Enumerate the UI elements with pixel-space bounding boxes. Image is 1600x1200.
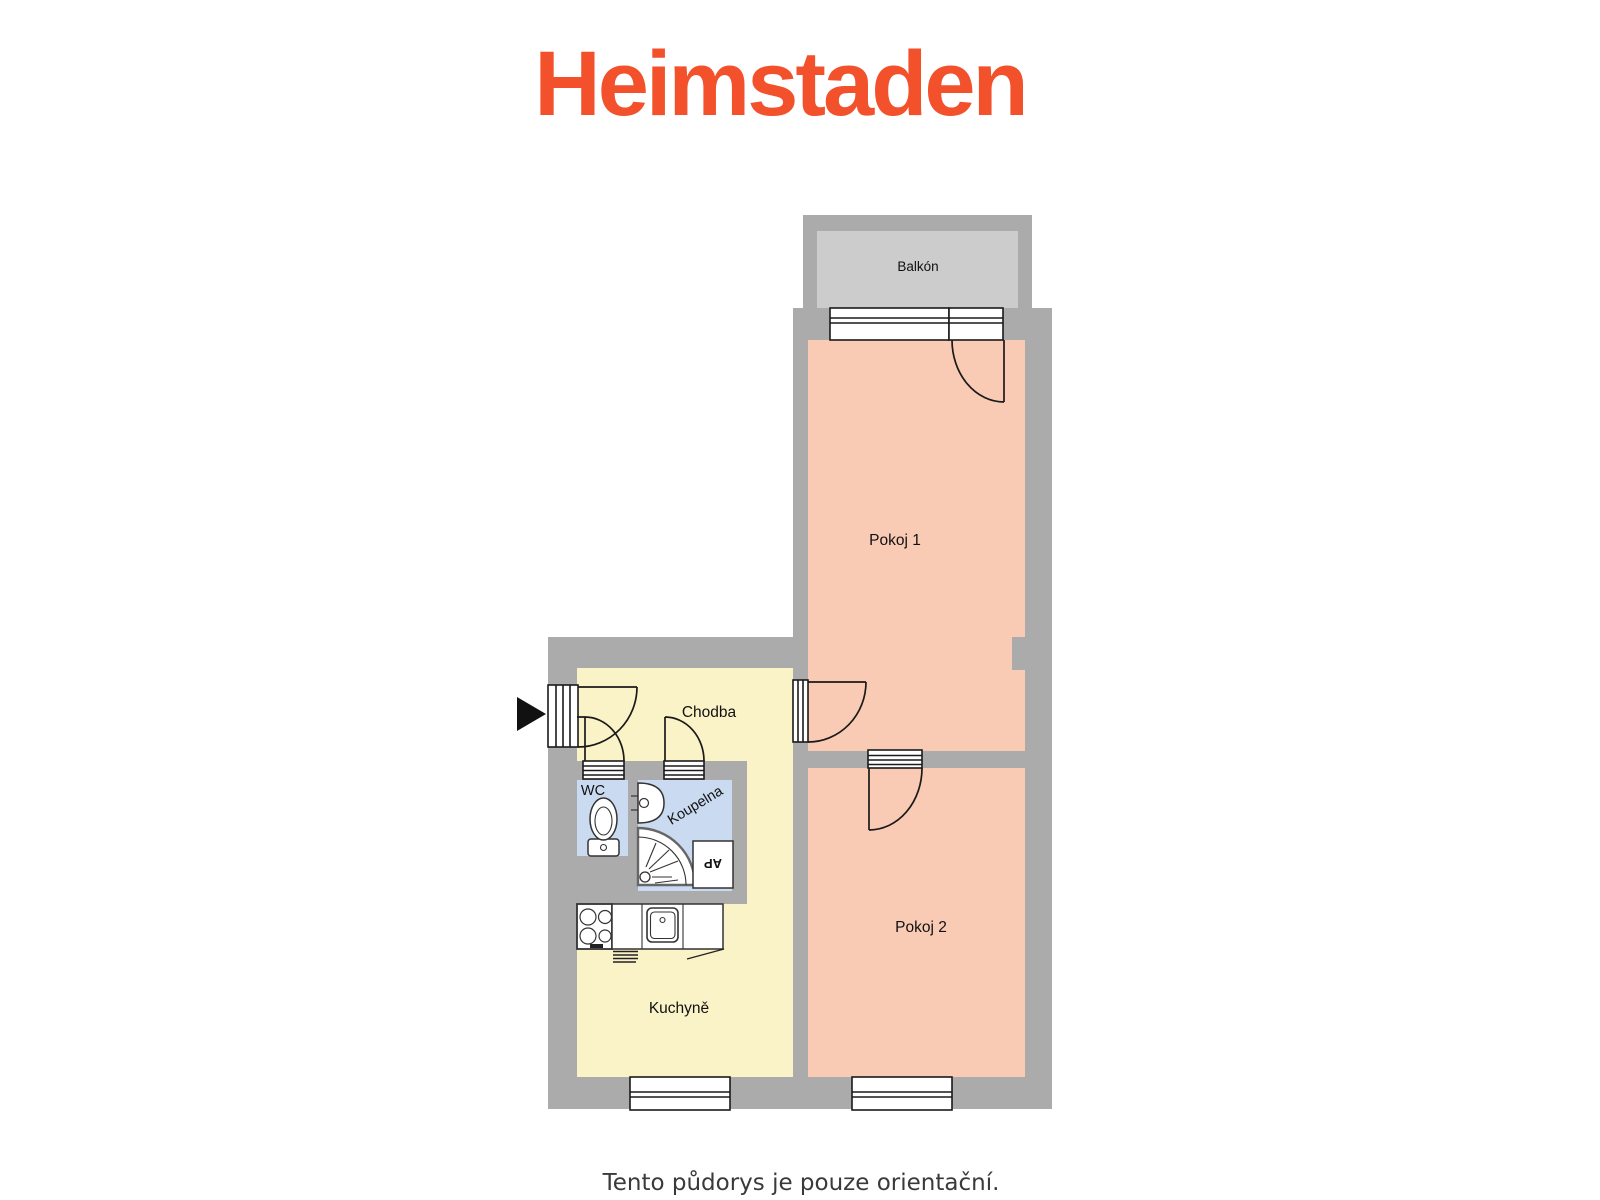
entrance-arrow-icon [517, 697, 546, 731]
balcony-window [830, 308, 949, 340]
room-label-balkon: Balkón [897, 259, 938, 274]
wall-balcony-top [803, 215, 1032, 231]
kuchyne-window [630, 1077, 730, 1110]
room-label-kuchyne: Kuchyně [649, 1000, 709, 1017]
room-label-washer-ap: AP [704, 856, 722, 871]
wall-pillar-notch [1012, 637, 1025, 670]
wall-balcony-left [803, 215, 817, 308]
entrance-door-frame [548, 685, 578, 747]
wall-right-outer [1025, 308, 1052, 1109]
page: Heimstaden [0, 0, 1600, 1200]
toilet-icon [588, 798, 619, 856]
balcony-door-frame [949, 308, 1003, 340]
kitchen-sink-icon [647, 908, 678, 942]
wall-balcony-right [1018, 215, 1032, 308]
floor-plan-image: Heimstaden [0, 0, 1600, 1200]
pokoj2-door-frame [868, 750, 922, 768]
wall-below-wc [548, 856, 638, 904]
pokoj2-window [852, 1077, 952, 1110]
koupelna-door-frame [664, 761, 704, 779]
stove-icon [577, 904, 612, 949]
wall-wc-koupelna-divider [628, 780, 638, 856]
wc-door-frame [583, 761, 624, 779]
room-label-chodba: Chodba [682, 704, 737, 721]
room-label-pokoj2: Pokoj 2 [895, 919, 947, 936]
room-label-wc: WC [581, 783, 605, 799]
pokoj1-door-frame [793, 680, 808, 742]
disclaimer-text: Tento půdorys je pouze orientační. [602, 1169, 1000, 1196]
brand-logo: Heimstaden [534, 33, 1026, 135]
wall-bottom-outer [548, 1077, 1052, 1109]
wall-chodba-top [548, 637, 793, 668]
wall-below-koupelna [638, 891, 747, 904]
wall-koupelna-right [732, 761, 747, 904]
chodba-strip-floor [747, 761, 793, 904]
room-label-pokoj1: Pokoj 1 [869, 532, 921, 549]
